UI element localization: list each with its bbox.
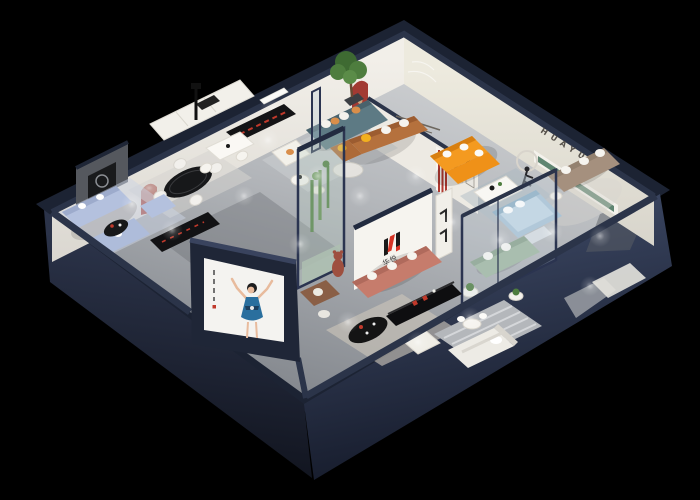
showroom-render: HUAYUE bbox=[0, 0, 700, 500]
footstool bbox=[318, 310, 330, 318]
poster-wall bbox=[190, 240, 300, 362]
showroom-svg: HUAYUE bbox=[0, 0, 700, 500]
